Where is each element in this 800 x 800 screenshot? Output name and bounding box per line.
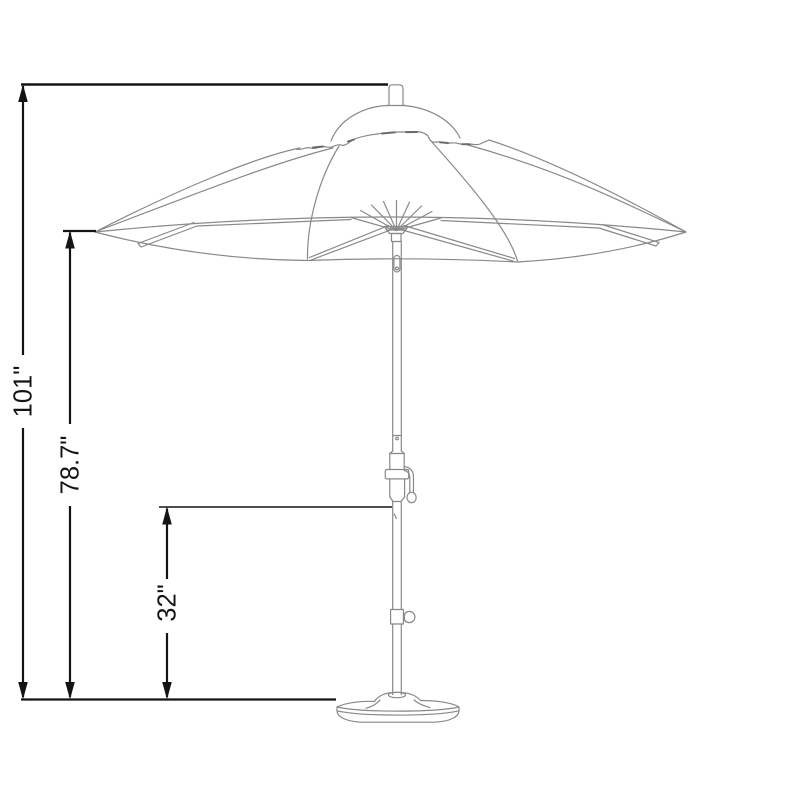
pole-upper-sides	[393, 242, 402, 452]
dimension-under-pole-clearance: 32"	[154, 507, 182, 700]
arrow-down-icon	[65, 682, 75, 700]
arrow-up-icon	[65, 231, 75, 249]
pole-middle	[393, 502, 402, 610]
crank-housing-upper	[390, 454, 404, 470]
arrow-down-icon	[162, 682, 172, 700]
crank-housing-lower	[390, 479, 405, 497]
dimension-overall-height: 101"	[10, 85, 38, 700]
pole-lower-sides	[393, 624, 402, 695]
vent-dome-right	[404, 106, 460, 139]
pole-upper	[393, 242, 402, 452]
base-top-front-edge	[337, 707, 459, 711]
canopy-rim-front	[95, 232, 686, 262]
dimension-diagram: 101" 78.7" 32"	[0, 0, 800, 800]
canopy-seam-front-right	[431, 141, 518, 261]
pole-slot-pin	[396, 267, 399, 270]
base-detail-arcs	[366, 700, 430, 708]
hub-neck	[392, 234, 402, 242]
pole-middle-sides	[393, 502, 402, 610]
dimension-annotations: 101" 78.7" 32"	[10, 85, 393, 700]
rib-right-long	[441, 221, 659, 247]
crank-assembly	[385, 451, 416, 503]
crank-handle-knob	[407, 492, 416, 502]
crank-housing-taper-bottom	[390, 497, 405, 502]
umbrella-base	[337, 692, 459, 722]
rib-left-long	[138, 220, 351, 248]
finial-body	[389, 85, 403, 105]
tilt-collar-body	[391, 610, 404, 625]
rib-front-right	[401, 226, 515, 262]
vent-scallop-edge	[296, 132, 489, 150]
tilt-collar	[391, 610, 415, 625]
finial	[387, 85, 406, 106]
umbrella-drawing	[95, 85, 686, 722]
canopy-seam-front-left	[307, 146, 339, 259]
base-top-rim	[337, 701, 459, 708]
canopy-ribs	[138, 201, 659, 262]
umbrella-dimension-drawing: 101" 78.7" 32"	[0, 0, 800, 800]
canopy-edge-height-label: 78.7"	[57, 436, 85, 495]
canopy-top	[95, 140, 686, 261]
arrow-up-icon	[18, 85, 28, 103]
canopy-vent	[296, 106, 489, 150]
pole-joint-pin	[396, 437, 399, 440]
arrow-down-icon	[18, 682, 28, 700]
tilt-knob-edge	[404, 613, 405, 622]
vent-dome-left	[331, 106, 388, 142]
crank-housing-taper-top	[390, 451, 404, 454]
dimension-canopy-edge-height: 78.7"	[57, 231, 85, 700]
under-pole-clearance-label: 32"	[154, 584, 182, 621]
rib-front-left	[310, 226, 393, 261]
overall-height-label: 101"	[10, 366, 38, 418]
base-body	[337, 711, 459, 722]
pole-pin-mark	[394, 514, 396, 519]
arrow-up-icon	[162, 507, 172, 525]
